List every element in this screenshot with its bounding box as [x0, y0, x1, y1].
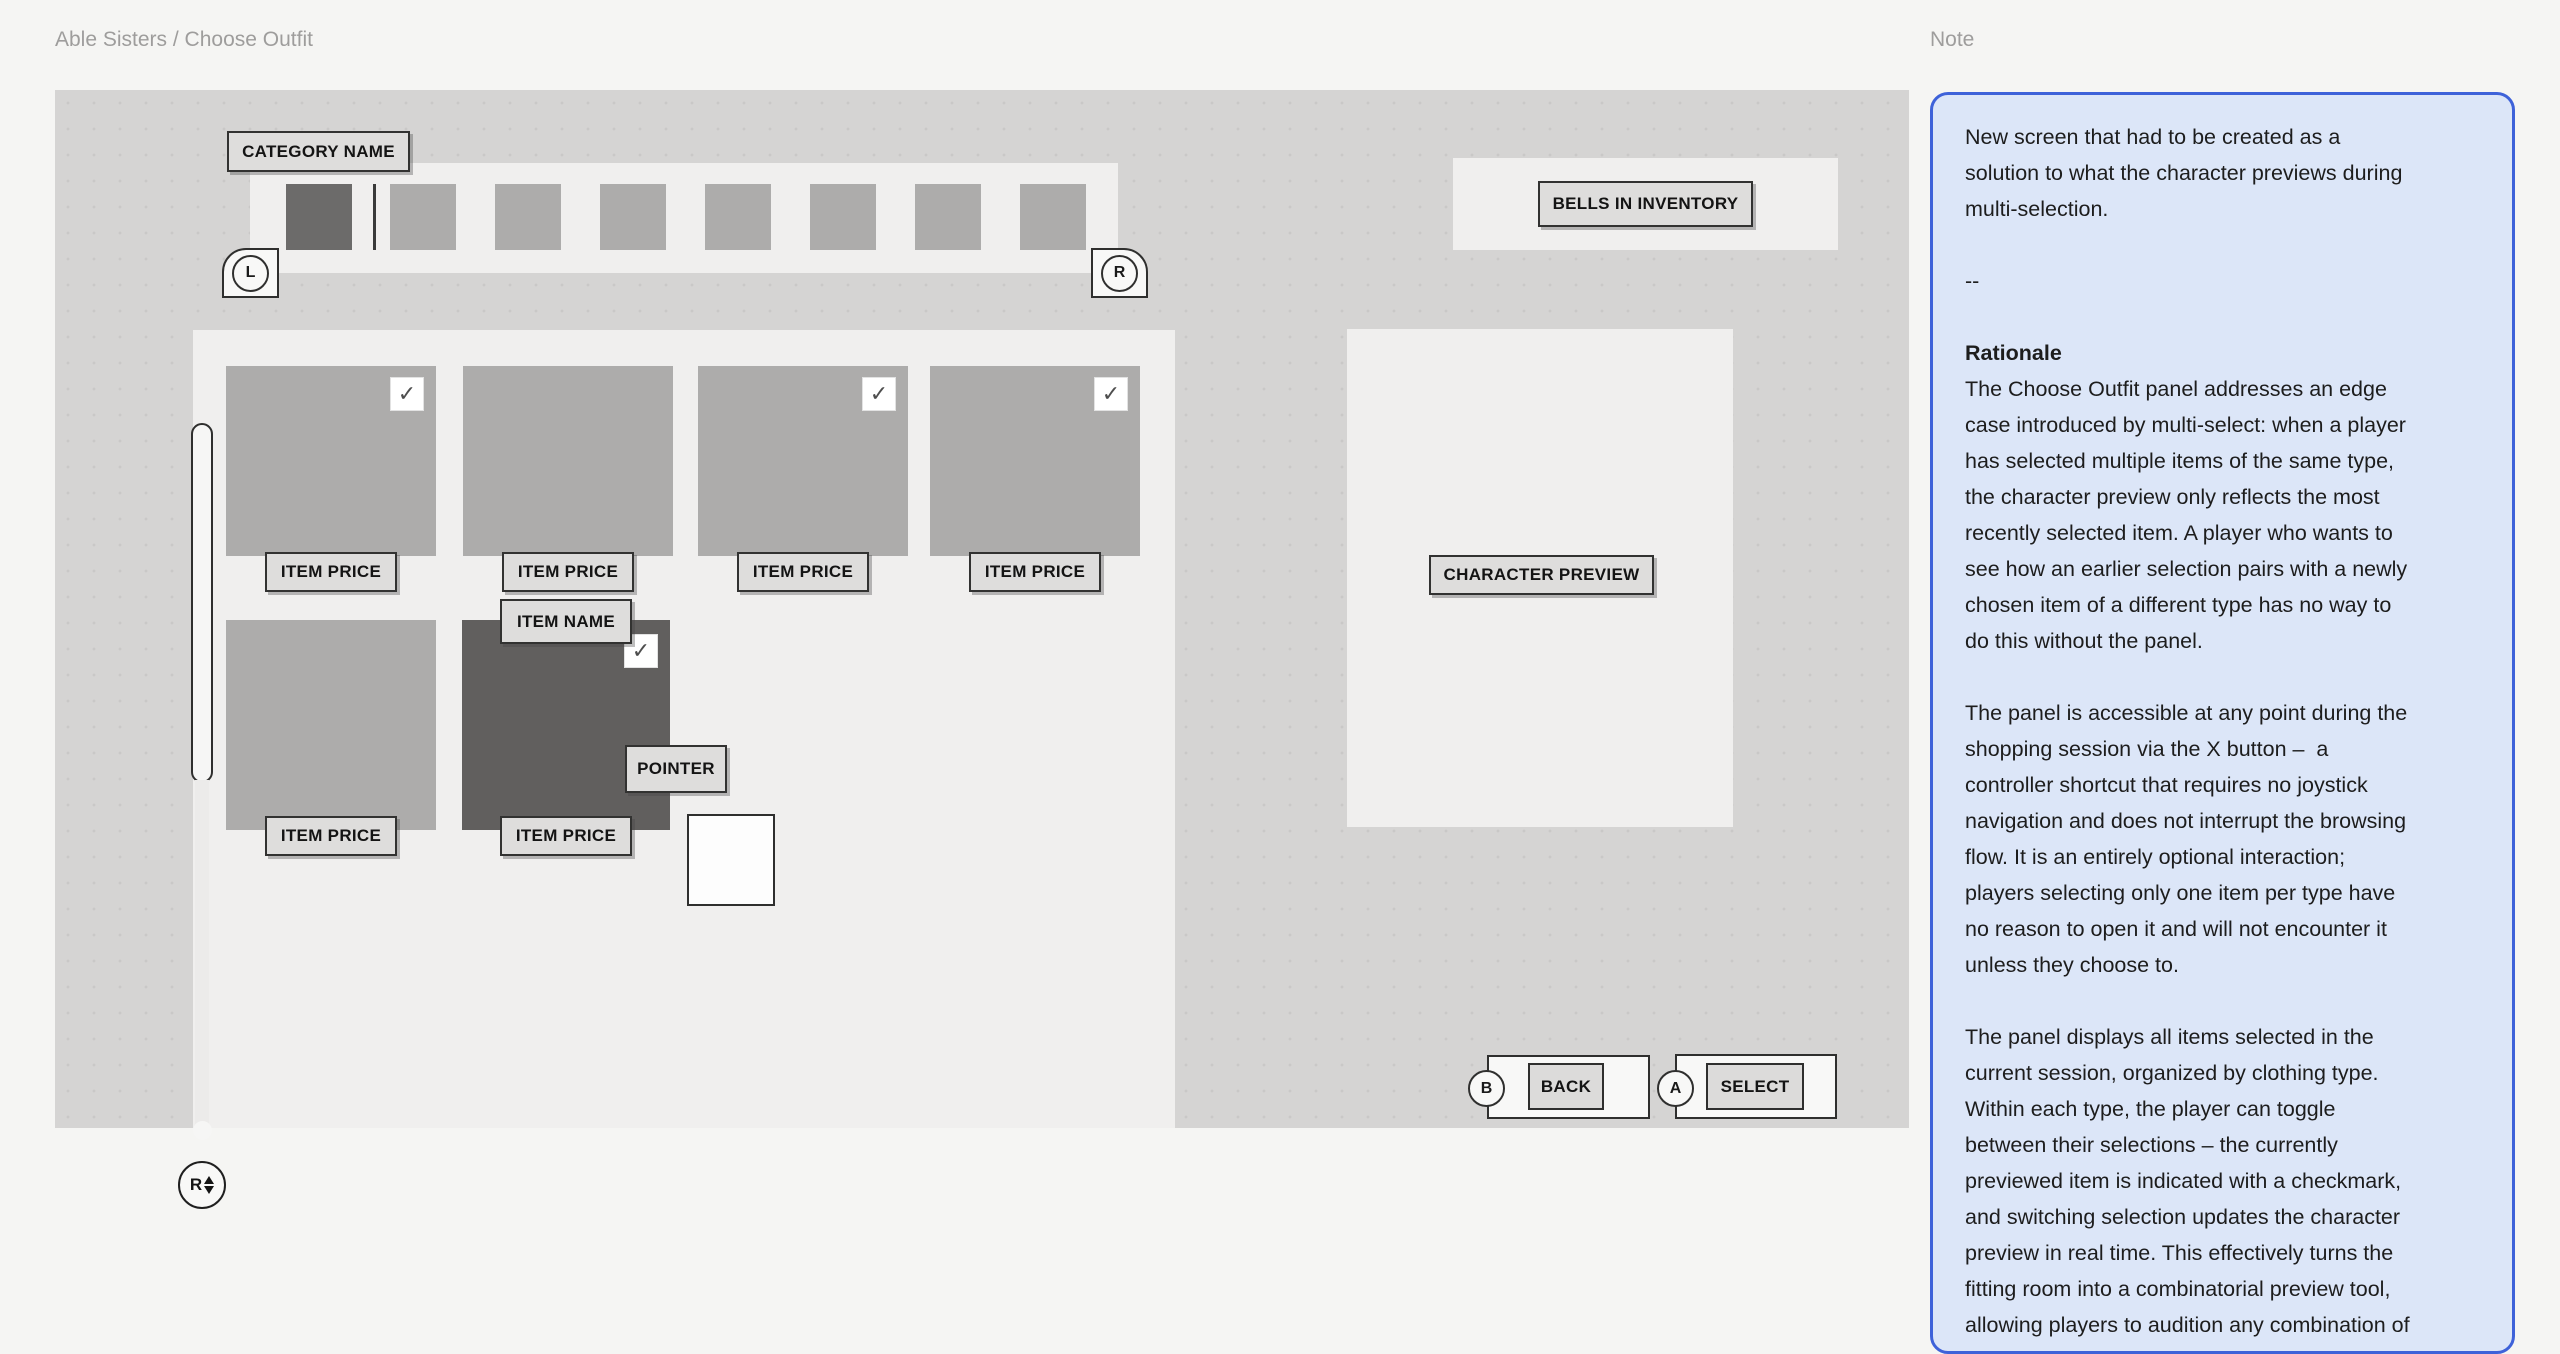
item-tile-1[interactable]: ✓ — [226, 366, 436, 556]
item-price-label: ITEM PRICE — [265, 552, 397, 592]
pointer-label: POINTER — [625, 745, 727, 793]
note-rationale-body: The Choose Outfit panel addresses an edg… — [1965, 371, 2478, 659]
category-thumbnail[interactable] — [810, 184, 876, 250]
item-price-label: ITEM PRICE — [265, 816, 397, 856]
item-price-label: ITEM PRICE — [502, 552, 634, 592]
scroll-slider[interactable] — [191, 423, 213, 783]
L-button-icon: L — [232, 255, 269, 292]
category-name-label: CATEGORY NAME — [227, 131, 410, 172]
note-rationale-heading: Rationale — [1965, 335, 2478, 371]
character-preview-label: CHARACTER PREVIEW — [1429, 555, 1654, 595]
pointer-cursor — [687, 814, 775, 906]
category-thumbnail[interactable] — [1020, 184, 1086, 250]
category-thumbnail[interactable] — [705, 184, 771, 250]
note-panel[interactable]: New screen that had to be created as a s… — [1930, 92, 2515, 1354]
back-button-label: BACK — [1528, 1063, 1604, 1110]
checkmark-icon: ✓ — [390, 377, 424, 411]
item-tile-6-highlighted[interactable]: ✓ — [462, 620, 670, 830]
thumbnail-divider — [373, 184, 376, 250]
scroll-track-end-dot — [193, 1121, 212, 1140]
checkmark-icon: ✓ — [862, 377, 896, 411]
category-thumbnail[interactable] — [600, 184, 666, 250]
up-down-arrows-icon — [204, 1176, 214, 1194]
category-thumbnail[interactable] — [390, 184, 456, 250]
item-price-label: ITEM PRICE — [969, 552, 1101, 592]
item-name-label: ITEM NAME — [500, 599, 632, 644]
category-thumbnail[interactable] — [915, 184, 981, 250]
checkmark-icon: ✓ — [1094, 377, 1128, 411]
item-tile-5[interactable] — [226, 620, 436, 830]
bells-in-inventory-label: BELLS IN INVENTORY — [1538, 181, 1753, 227]
stick-key-label: R — [190, 1175, 202, 1195]
R-button-icon: R — [1101, 255, 1138, 292]
category-thumbnail[interactable] — [495, 184, 561, 250]
item-price-label: ITEM PRICE — [500, 816, 632, 856]
note-title: Note — [1930, 28, 1974, 52]
right-stick-scroll-button[interactable]: R — [178, 1161, 226, 1209]
shoulder-button-L[interactable]: L — [222, 248, 279, 298]
note-intro: New screen that had to be created as a s… — [1965, 119, 2478, 227]
A-button-icon: A — [1657, 1070, 1694, 1107]
scroll-track — [195, 780, 209, 1126]
note-divider: -- — [1965, 263, 2478, 299]
category-strip-panel — [250, 163, 1118, 273]
item-tile-3[interactable]: ✓ — [698, 366, 908, 556]
item-tile-2[interactable] — [463, 366, 673, 556]
item-tile-4[interactable]: ✓ — [930, 366, 1140, 556]
category-thumbnail-selected[interactable] — [286, 184, 352, 250]
B-button-icon: B — [1468, 1070, 1505, 1107]
note-accessibility-paragraph: The panel is accessible at any point dur… — [1965, 695, 2478, 983]
shoulder-button-R[interactable]: R — [1091, 248, 1148, 298]
wireframe-canvas: CATEGORY NAME L R ✓ ✓ ✓ ITEM PRICE ITEM … — [55, 90, 1909, 1128]
breadcrumb[interactable]: Able Sisters / Choose Outfit — [55, 28, 313, 52]
item-price-label: ITEM PRICE — [737, 552, 869, 592]
select-button-label: SELECT — [1706, 1063, 1804, 1110]
note-display-paragraph: The panel displays all items selected in… — [1965, 1019, 2478, 1354]
